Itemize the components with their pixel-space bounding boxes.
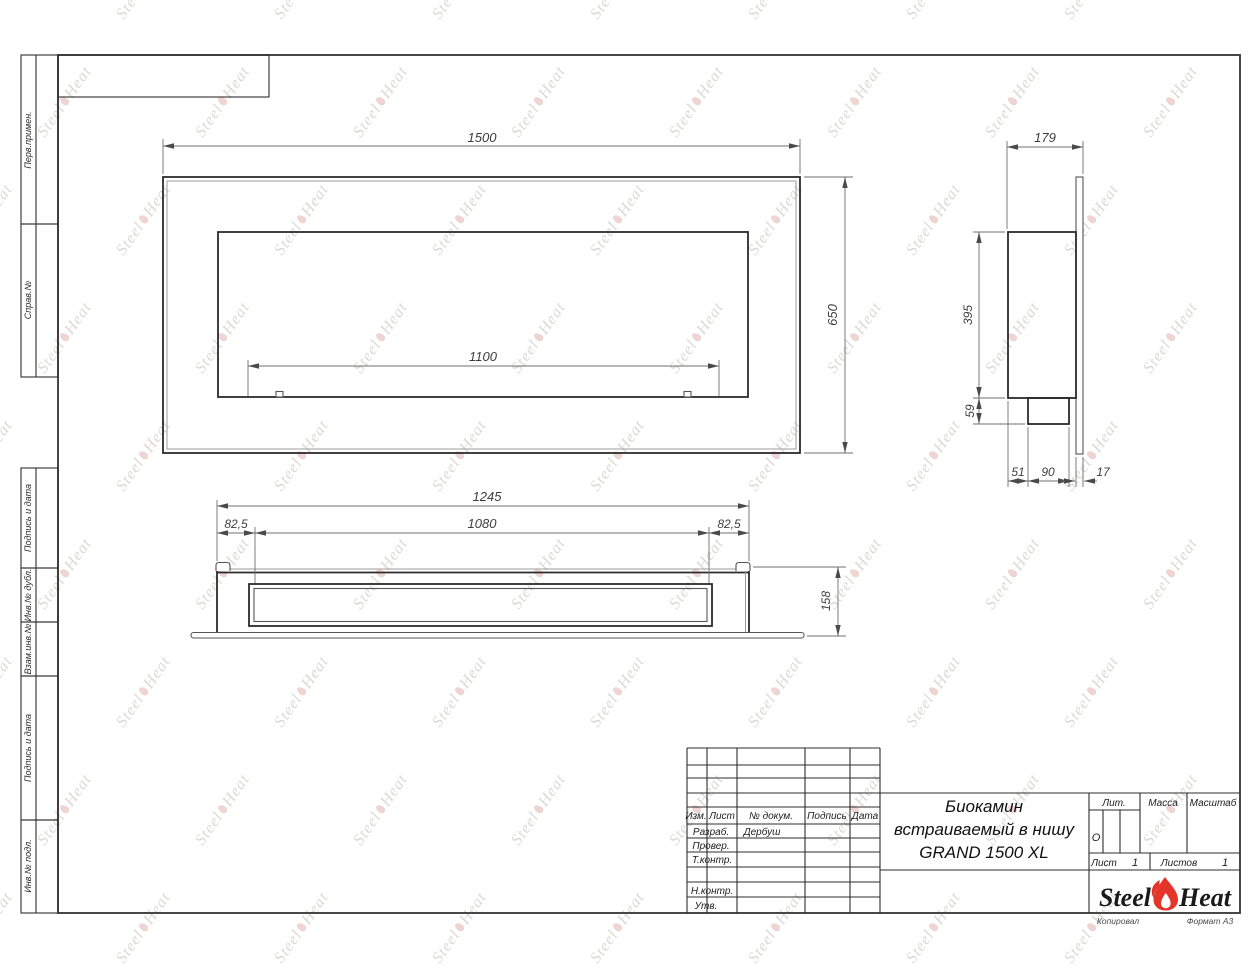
doc-title-line2: встраиваемый в нишу: [894, 820, 1075, 839]
dim-top-opening: 1080: [468, 516, 498, 531]
front-view: 1500 650 1100: [163, 130, 853, 453]
dim-top-margin-right: 82,5: [717, 517, 741, 531]
drawing-sheet: SteelHeatSteelHeatSteelHeatSteelHeatStee…: [0, 0, 1255, 970]
top-left-stamp-box: [58, 55, 269, 97]
lit-header: Лит.: [1101, 798, 1125, 809]
dim-side-burner-offset: 51: [1011, 465, 1024, 479]
col-header-date: Дата: [851, 811, 879, 822]
margin-label-podpis-data-1: Подпись и дата: [23, 484, 33, 552]
row-developed-label: Разраб.: [693, 826, 729, 838]
dim-top-margin-left: 82,5: [224, 517, 248, 531]
sheet-label: Лист: [1090, 858, 1117, 869]
col-header-sign: Подпись: [807, 811, 847, 822]
dim-side-burner-depth: 90: [1041, 465, 1055, 479]
margin-label-vzam-inv: Взам.инв.№: [23, 623, 33, 674]
sheet-value: 1: [1132, 857, 1138, 869]
sheets-label: Листов: [1160, 858, 1197, 869]
dim-side-panel-thickness: 17: [1096, 465, 1111, 479]
title-block: Изм. Лист № докум. Подпись Дата Разраб. …: [685, 748, 1240, 926]
row-ncontrol-label: Н.контр.: [691, 886, 733, 897]
left-margin-boxes: Перв.примен. Справ.№ Подпись и дата Инв.…: [21, 55, 58, 913]
top-front-panel-plate: [191, 633, 804, 639]
engineering-drawing: Перв.примен. Справ.№ Подпись и дата Инв.…: [0, 0, 1255, 970]
side-burner-tray: [1028, 398, 1069, 424]
flame-icon: [1152, 877, 1178, 911]
lit-value: О: [1092, 832, 1101, 844]
dim-side-depth: 179: [1034, 130, 1056, 145]
side-front-panel: [1076, 177, 1083, 454]
logo-text-heat: Heat: [1178, 883, 1232, 912]
footer-format: Формат А3: [1187, 916, 1234, 926]
mass-header: Масса: [1148, 798, 1178, 809]
col-header-list: Лист: [708, 811, 735, 822]
doc-title-line3: GRAND 1500 XL: [919, 843, 1048, 862]
row-checked-label: Провер.: [692, 841, 729, 852]
margin-label-inv-podl: Инв.№ подл.: [23, 839, 33, 892]
dim-front-opening: 1100: [469, 349, 498, 364]
margin-label-sprav-no: Справ.№: [23, 281, 33, 320]
front-left-bracket: [276, 392, 283, 398]
row-approved-label: Утв.: [694, 901, 718, 912]
doc-title-line1: Биокамин: [945, 797, 1024, 816]
sheets-value: 1: [1222, 857, 1228, 869]
top-right-bracket: [736, 563, 750, 572]
steelheat-logo: Steel Heat: [1099, 877, 1232, 912]
dim-front-height: 650: [825, 303, 840, 325]
row-developed-name: Дербуш: [743, 826, 782, 838]
row-tcontrol-label: Т.контр.: [692, 855, 732, 866]
margin-label-perv-primen: Перв.примен.: [23, 111, 33, 168]
top-view: 1245 82,5 1080 82,5 158: [191, 489, 846, 638]
dim-front-width: 1500: [468, 130, 498, 145]
col-header-doc: № докум.: [749, 811, 793, 822]
front-panel-outline: [163, 177, 800, 453]
top-burner-opening-inner: [254, 589, 707, 622]
dim-top-depth: 158: [819, 591, 833, 611]
top-left-bracket: [216, 563, 230, 572]
footer-copied: Копировал: [1097, 916, 1139, 926]
logo-text-steel: Steel: [1099, 883, 1152, 912]
front-right-bracket: [684, 392, 691, 398]
dim-top-width: 1245: [473, 489, 503, 504]
col-header-izm: Изм.: [685, 811, 706, 822]
sheet-frame: [58, 55, 1240, 913]
dim-side-burner-height: 59: [963, 404, 977, 418]
margin-label-inv-dubl: Инв.№ дубл.: [23, 569, 33, 622]
front-opening-outline: [218, 232, 748, 397]
side-view: 179 395 59 51 90 17: [961, 130, 1111, 487]
top-burner-opening-outer: [249, 584, 712, 626]
margin-label-podpis-data-2: Подпись и дата: [23, 714, 33, 782]
scale-header: Масштаб: [1190, 797, 1237, 809]
dim-side-body-height: 395: [961, 305, 975, 325]
side-body: [1008, 232, 1076, 398]
